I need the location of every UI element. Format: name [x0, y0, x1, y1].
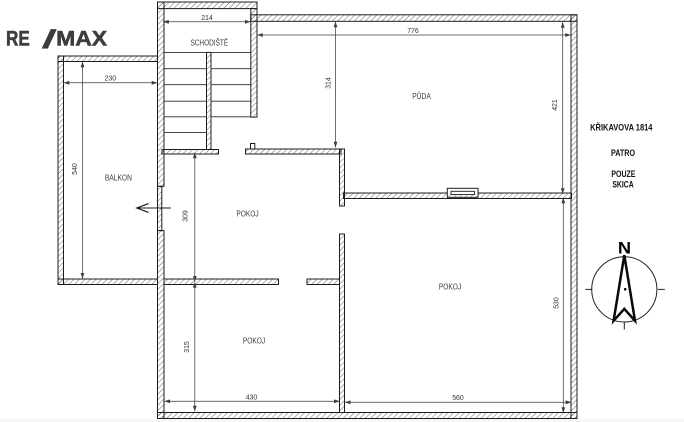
svg-text:SCHODIŠTĚ: SCHODIŠTĚ: [190, 38, 228, 48]
svg-text:MAX: MAX: [56, 28, 107, 51]
svg-text:530: 530: [554, 297, 561, 309]
svg-text:RE: RE: [6, 28, 30, 51]
svg-text:SKICA: SKICA: [612, 180, 634, 190]
svg-text:N: N: [618, 240, 631, 258]
svg-text:POKOJ: POKOJ: [236, 209, 258, 218]
svg-text:POKOJ: POKOJ: [243, 336, 265, 345]
svg-text:PATRO: PATRO: [611, 148, 635, 158]
svg-text:KŘIKAVOVA 1814: KŘIKAVOVA 1814: [590, 122, 652, 133]
svg-text:540: 540: [72, 163, 79, 175]
svg-text:309: 309: [183, 210, 190, 222]
svg-text:POKOJ: POKOJ: [439, 282, 461, 291]
svg-text:BALKON: BALKON: [105, 174, 132, 183]
svg-text:776: 776: [407, 28, 419, 35]
svg-text:421: 421: [552, 99, 559, 111]
svg-text:560: 560: [452, 395, 464, 402]
svg-text:314: 314: [326, 77, 333, 89]
svg-text:214: 214: [201, 15, 213, 22]
svg-text:315: 315: [184, 341, 191, 353]
svg-text:PŮDA: PŮDA: [412, 92, 431, 101]
svg-text:430: 430: [246, 394, 258, 401]
svg-text:230: 230: [105, 76, 117, 83]
svg-text:POUZE: POUZE: [611, 169, 635, 179]
